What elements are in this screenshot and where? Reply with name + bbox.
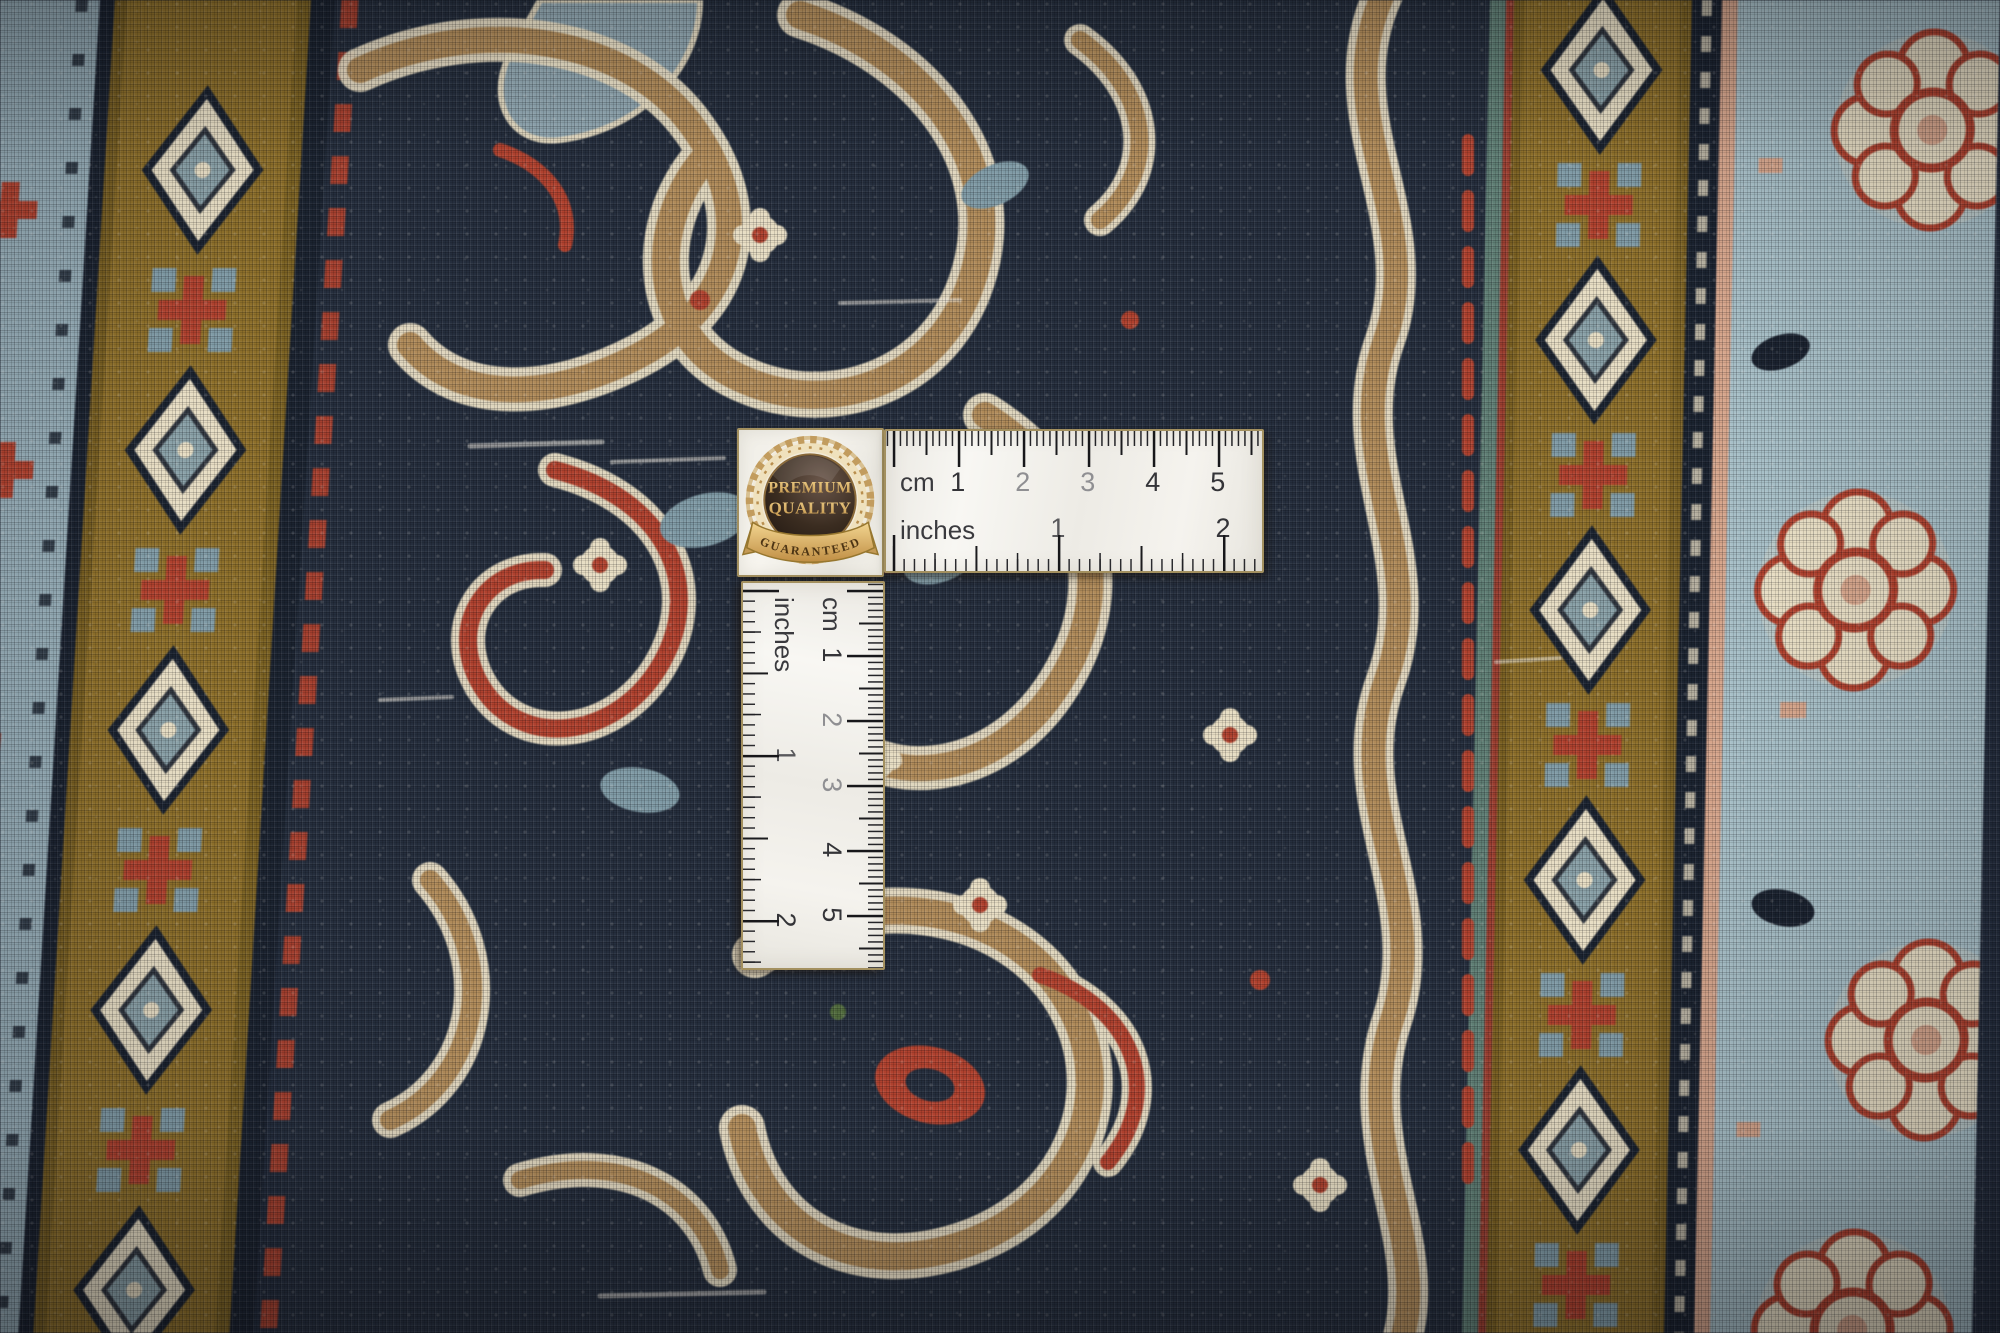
badge-line1: PREMIUM <box>768 479 852 496</box>
badge-medallion: PREMIUM QUALITY GUARANTEED <box>739 430 882 575</box>
badge-line2: QUALITY <box>769 499 852 518</box>
inch-tick-scale <box>886 535 1262 571</box>
inch-tick-scale <box>743 583 779 968</box>
carpet-weave-artwork <box>0 0 2000 1333</box>
right-border-bands <box>1460 0 2000 1333</box>
ruler-horizontal: cm 12345 inches 12 <box>884 429 1264 573</box>
ruler-vertical-wrapper: cm 12345 inches 12 <box>741 581 885 970</box>
ruler-vertical: cm 12345 inches 12 <box>741 581 885 970</box>
premium-quality-badge: PREMIUM QUALITY GUARANTEED <box>737 428 884 577</box>
rug-photograph: PREMIUM QUALITY GUARANTEED cm 12345 inch… <box>0 0 2000 1333</box>
